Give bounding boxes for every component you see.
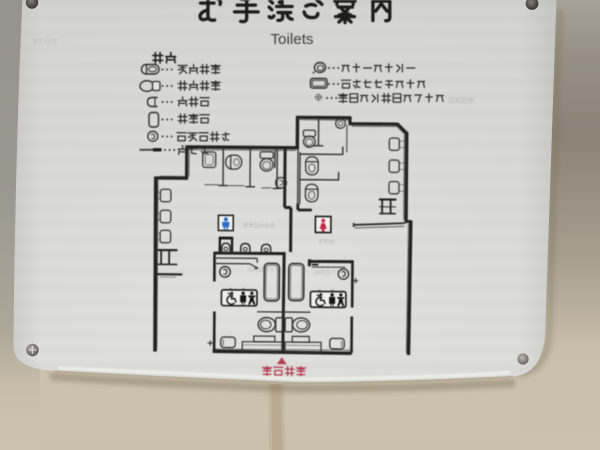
svg-text:Toilets: Toilets: [270, 31, 313, 48]
